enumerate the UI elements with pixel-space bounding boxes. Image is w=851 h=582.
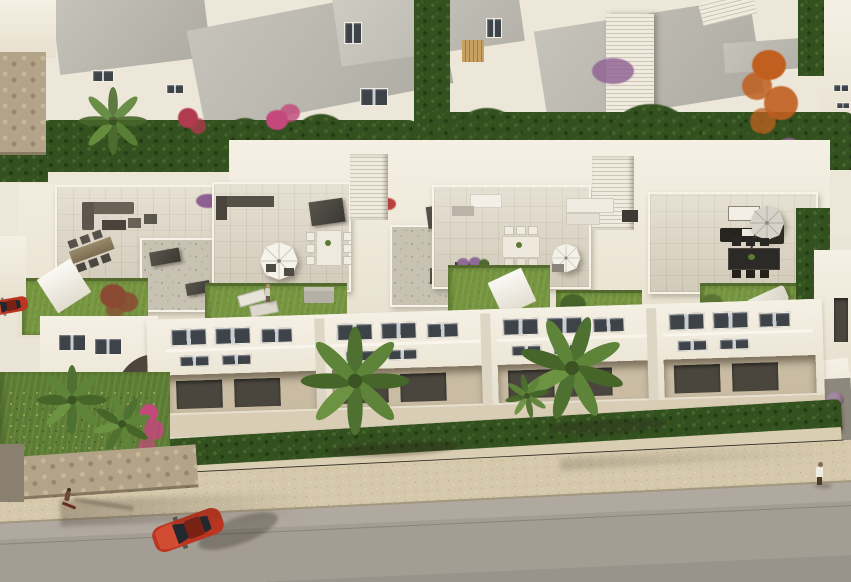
palm-tree [76, 84, 150, 158]
dining-chair [746, 238, 755, 246]
wood-pergola [462, 40, 484, 62]
ac-unit [308, 198, 345, 226]
facade-window [712, 311, 749, 329]
bistro-chair [284, 268, 294, 276]
person-legs [266, 296, 270, 302]
palm-tree-large [296, 322, 414, 440]
facade-window [426, 322, 458, 338]
background-window [166, 84, 184, 94]
porch-glass [732, 362, 779, 391]
dining-chair [306, 256, 315, 265]
porch-glass [674, 364, 721, 393]
background-window [92, 70, 114, 82]
sofa-gray [304, 291, 334, 303]
dining-chair [732, 270, 741, 278]
lounge-chair [452, 206, 474, 216]
dining-chair [100, 253, 111, 264]
porch-glass [234, 378, 281, 407]
background-window [344, 22, 362, 44]
facade-window [179, 355, 209, 367]
table-plant [325, 240, 331, 246]
bistro-table [552, 264, 564, 272]
scene [0, 0, 851, 582]
daybed-white [470, 194, 502, 208]
background-window [833, 84, 849, 92]
foliage [750, 108, 776, 134]
dining-chair [343, 256, 352, 265]
dining-chair [732, 238, 741, 246]
dining-chair [306, 232, 315, 241]
red-flower-bush [176, 104, 210, 140]
dining-chair [343, 244, 352, 253]
orange-autumn-tree [742, 50, 806, 140]
sofa [82, 202, 94, 230]
stairwell [350, 154, 388, 220]
dining-chair [306, 244, 315, 253]
facade-window [260, 327, 292, 343]
background-wall [0, 0, 56, 58]
right-building-window [834, 298, 848, 342]
sofa [566, 198, 614, 213]
outdoor-kitchen [216, 196, 227, 220]
facade-window [719, 338, 749, 350]
porch-glass [176, 380, 223, 409]
dining-chair [516, 226, 526, 235]
dining-table [316, 230, 342, 266]
facade-window [170, 328, 207, 346]
dining-chair [760, 238, 769, 246]
background-window [360, 88, 388, 106]
pedestrian [806, 462, 836, 492]
facade-window [677, 339, 707, 351]
bistro-chair [266, 264, 276, 272]
stone-wall [0, 52, 46, 155]
dining-chair [343, 232, 352, 241]
purple-trellis [592, 58, 634, 84]
side-table [622, 210, 638, 222]
facade-window [221, 354, 251, 366]
facade-window [94, 338, 122, 355]
pink-bougainvillea [266, 104, 304, 140]
bloom [280, 104, 300, 122]
dining-chair [746, 270, 755, 278]
sofa [566, 213, 600, 225]
facade-window [758, 312, 790, 328]
dining-set-white [304, 220, 352, 272]
background-window [486, 18, 502, 38]
facade-window [668, 312, 705, 330]
background-window [836, 102, 850, 109]
pedestrian-legs [817, 477, 822, 485]
facade-window [58, 334, 86, 351]
table-plant [516, 242, 522, 248]
armchair [144, 214, 157, 224]
left-steps-shade [0, 444, 24, 502]
dining-set-dark [718, 236, 788, 282]
person-on-lawn [264, 284, 272, 304]
porch-recess [664, 355, 817, 398]
facade-window [214, 327, 251, 345]
dining-chair [88, 257, 99, 268]
dining-chair [504, 226, 514, 235]
dining-chair [760, 270, 769, 278]
armchair [128, 218, 141, 228]
table-bowl [748, 254, 755, 260]
bloom [190, 118, 206, 134]
dining-chair [528, 226, 538, 235]
dining-set-white [492, 224, 546, 268]
